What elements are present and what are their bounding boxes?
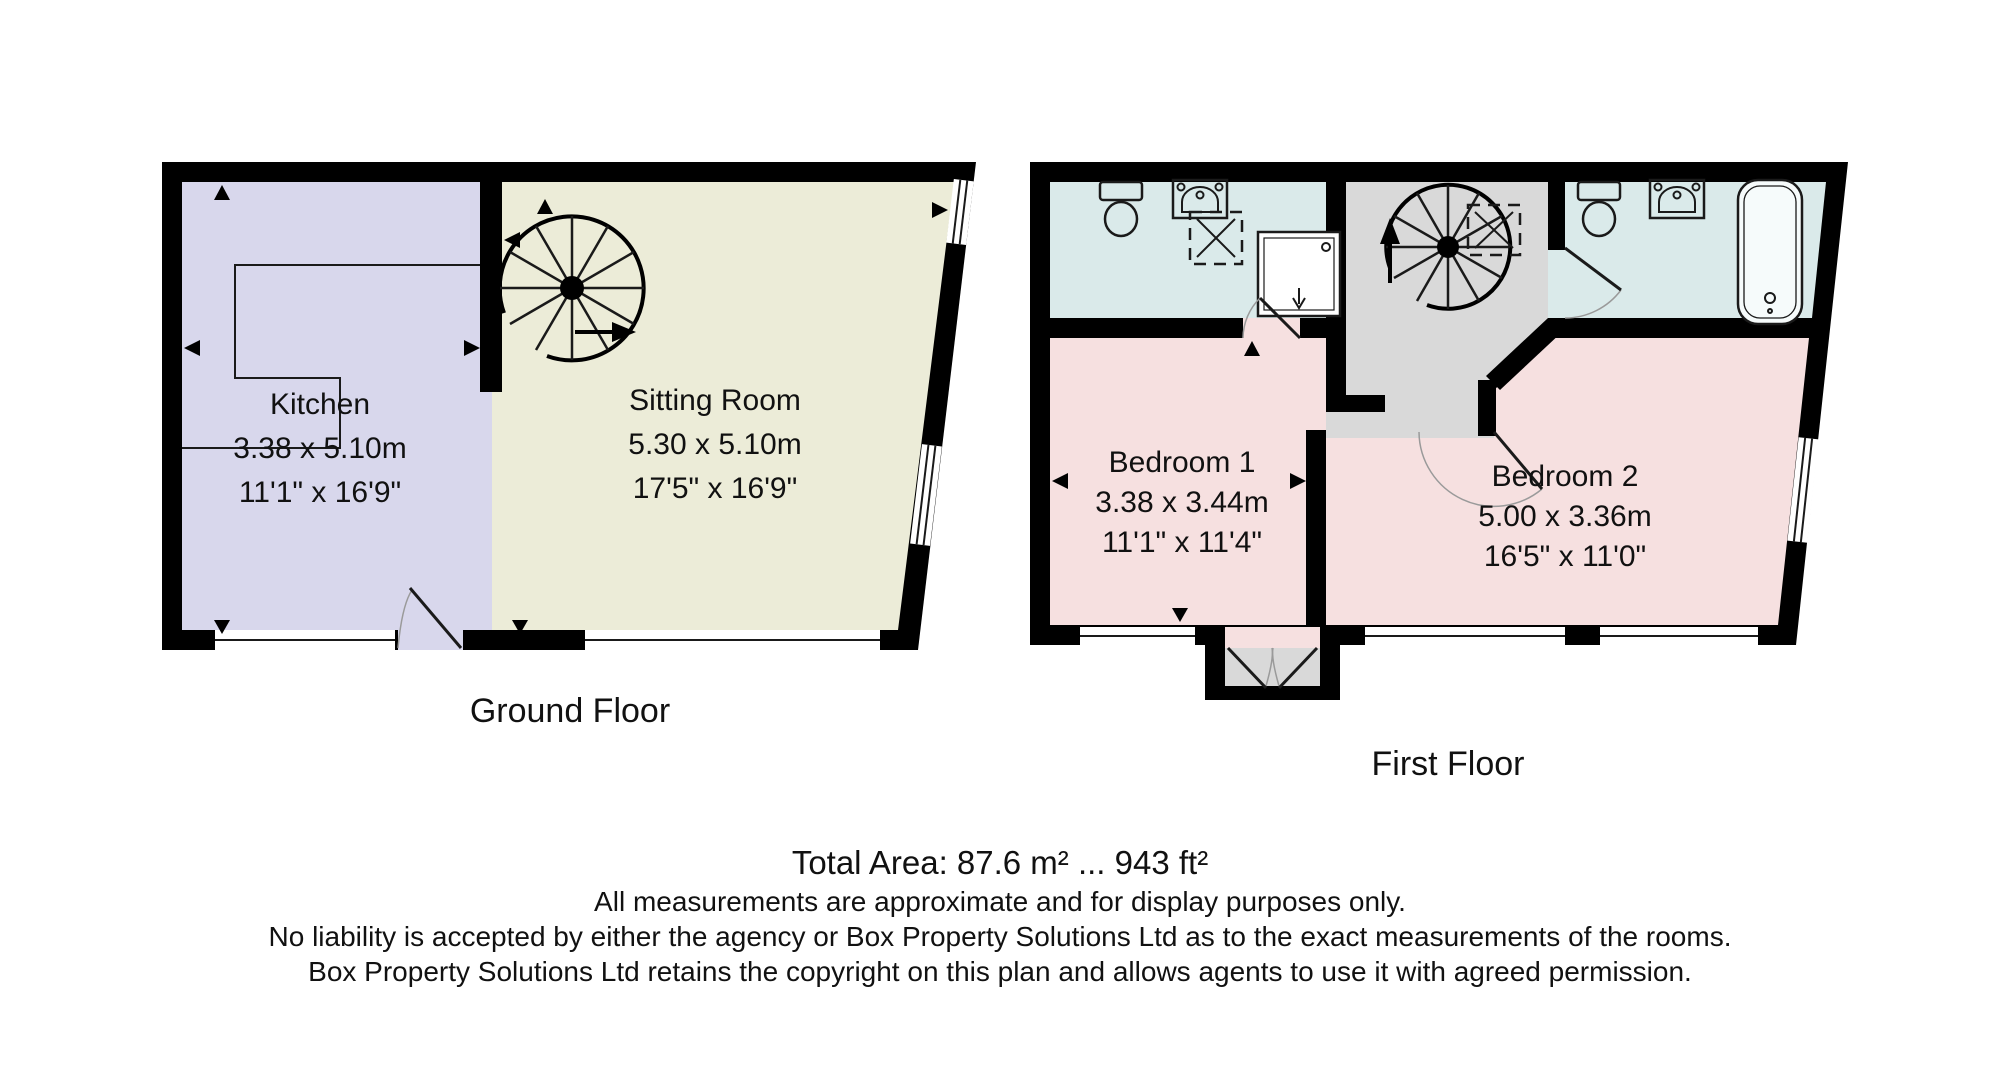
sitting-room-dims-imperial: 17'5" x 16'9": [633, 472, 798, 505]
bedroom-2-window: [1365, 627, 1565, 645]
kitchen-dims-metric: 3.38 x 5.10m: [233, 432, 406, 465]
kitchen-window: [215, 630, 395, 650]
bedroom-1-dims-imperial: 11'1" x 11'4": [1102, 526, 1262, 559]
disclaimer-line: No liability is accepted by either the a…: [269, 921, 1732, 952]
bedroom-2-name-label: Bedroom 2: [1492, 460, 1639, 493]
sitting-room-dims-metric: 5.30 x 5.10m: [628, 428, 801, 461]
bedroom-1-name-label: Bedroom 1: [1109, 446, 1256, 479]
shower-enclosure-icon: [1258, 232, 1340, 316]
kitchen-dims-imperial: 11'1" x 16'9": [239, 476, 401, 509]
bedroom-2-window: [1600, 627, 1758, 645]
first-floor-caption: First Floor: [1372, 745, 1525, 783]
ground-floor-plan: Kitchen 3.38 x 5.10m 11'1" x 16'9" Sitti…: [162, 162, 976, 730]
bedroom-2-dims-metric: 5.00 x 3.36m: [1478, 500, 1651, 533]
bathroom-1-wall: [1050, 318, 1346, 338]
landing-wall-stub: [1326, 395, 1385, 412]
ground-floor-caption: Ground Floor: [470, 692, 670, 730]
bedroom-1-floor: [1050, 338, 1326, 625]
first-floor-plan: Bedroom 1 3.38 x 3.44m 11'1" x 11'4" Bed…: [1030, 162, 1848, 783]
bedroom-partition-wall: [1306, 430, 1326, 645]
sitting-room-window: [585, 630, 880, 650]
disclaimer-line: All measurements are approximate and for…: [594, 886, 1406, 917]
footer-disclaimer: Total Area: 87.6 m² ... 943 ft² All meas…: [269, 844, 1732, 987]
floorplan-canvas: Kitchen 3.38 x 5.10m 11'1" x 16'9" Sitti…: [0, 0, 2000, 1079]
bedroom-1-dims-metric: 3.38 x 3.44m: [1095, 486, 1268, 519]
landing-door-wall: [1478, 380, 1496, 436]
kitchen-name-label: Kitchen: [270, 388, 370, 421]
floorplan-page: Kitchen 3.38 x 5.10m 11'1" x 16'9" Sitti…: [0, 0, 2000, 1079]
bedroom-1-window: [1080, 627, 1195, 645]
disclaimer-line: Box Property Solutions Ltd retains the c…: [308, 956, 1692, 987]
porch: [1225, 627, 1320, 688]
sitting-room-name-label: Sitting Room: [629, 384, 801, 417]
bathtub-icon: [1738, 180, 1802, 324]
total-area-text: Total Area: 87.6 m² ... 943 ft²: [792, 844, 1208, 881]
bedroom-2-dims-imperial: 16'5" x 11'0": [1484, 540, 1646, 573]
